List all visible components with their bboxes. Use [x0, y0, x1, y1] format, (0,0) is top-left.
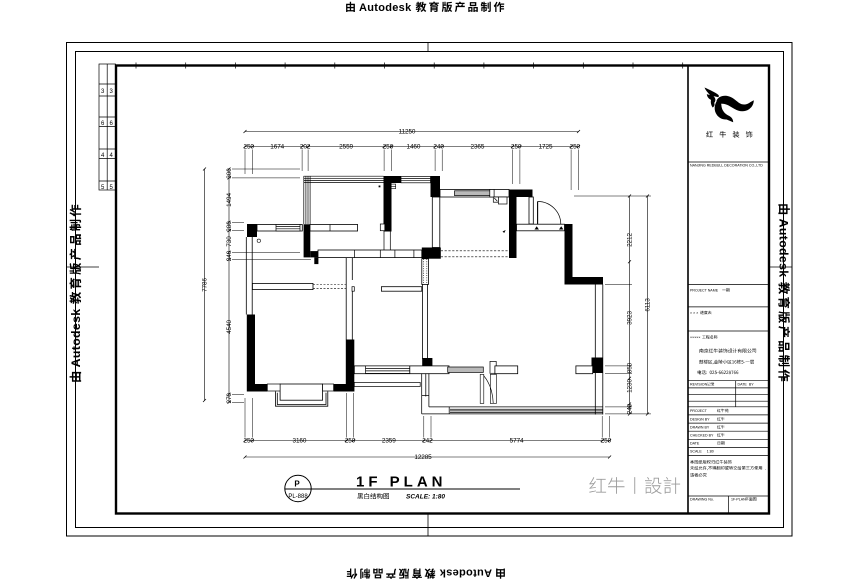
svg-text:P: P [294, 480, 300, 489]
svg-text:NANJING REDBULL DECORATION CO.: NANJING REDBULL DECORATION CO.,LTD [690, 164, 763, 168]
svg-text:4540: 4540 [226, 319, 233, 333]
svg-text:1230: 1230 [627, 379, 634, 393]
svg-text:SCALE: 1:80: SCALE: 1:80 [406, 494, 445, 501]
svg-text:242: 242 [422, 438, 433, 445]
svg-text:1725: 1725 [539, 144, 553, 151]
svg-text:250: 250 [601, 438, 612, 445]
svg-text:3923: 3923 [627, 311, 634, 325]
svg-text:2365: 2365 [470, 144, 484, 151]
svg-text:6113: 6113 [645, 298, 652, 312]
svg-text:DATE BY: DATE BY [738, 383, 755, 387]
svg-text:1F PLAN: 1F PLAN [356, 474, 447, 491]
svg-text:5774: 5774 [510, 438, 524, 445]
svg-text:SCALE 1:80: SCALE 1:80 [690, 450, 714, 454]
svg-text:DATE: DATE [690, 442, 700, 446]
svg-text:REVISION: REVISION [690, 383, 708, 387]
svg-text:× × ×: × × × [690, 311, 698, 315]
svg-text:1674: 1674 [270, 144, 284, 151]
svg-text:CHECKED BY: CHECKED BY [690, 434, 714, 438]
svg-text:2559: 2559 [339, 144, 353, 151]
svg-text:7786: 7786 [202, 278, 209, 292]
svg-text:DRAWN BY: DRAWN BY [690, 426, 710, 430]
svg-text:12285: 12285 [414, 454, 432, 461]
svg-text:PROJECT: PROJECT [690, 409, 708, 413]
svg-text:1F-PLAN: 1F-PLAN [731, 498, 746, 502]
svg-text:PROJECT NAME: PROJECT NAME [690, 289, 719, 293]
svg-text:2359: 2359 [382, 438, 396, 445]
svg-text:250: 250 [244, 438, 255, 445]
svg-text:300: 300 [226, 168, 233, 179]
svg-text:DRAWING No.: DRAWING No. [690, 498, 714, 502]
svg-text:240: 240 [627, 403, 634, 414]
svg-text:PL-888: PL-888 [288, 494, 308, 500]
svg-text:2212: 2212 [627, 233, 634, 247]
svg-text:1494: 1494 [226, 193, 233, 207]
svg-text:1460: 1460 [406, 144, 420, 151]
svg-text:DESIGN BY: DESIGN BY [690, 418, 710, 422]
svg-text:×××××: ××××× [690, 336, 701, 340]
svg-text:250: 250 [345, 438, 356, 445]
svg-text:11250: 11250 [399, 129, 416, 136]
svg-text:202: 202 [300, 144, 311, 151]
svg-text:850: 850 [627, 362, 634, 373]
svg-text:730: 730 [226, 236, 233, 247]
svg-text:3160: 3160 [292, 438, 306, 445]
